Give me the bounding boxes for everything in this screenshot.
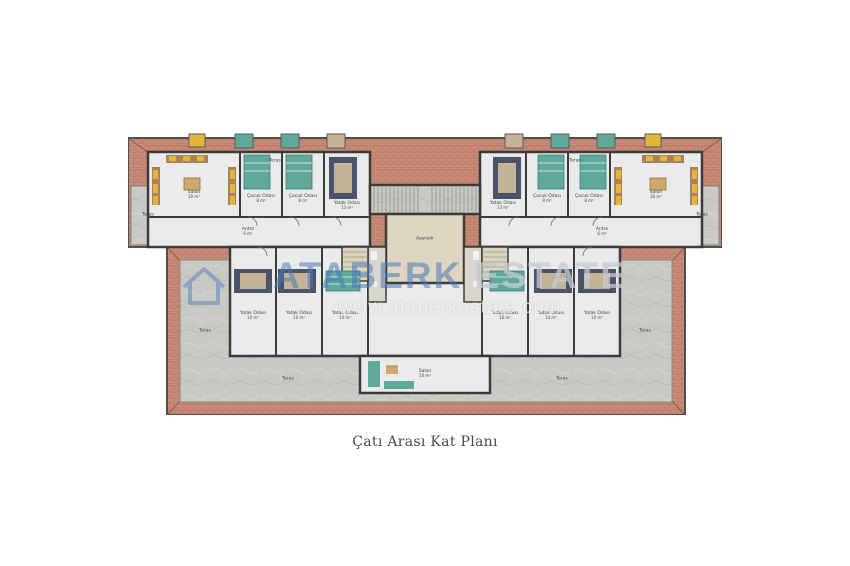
plan-caption: Çatı Arası Kat Planı (0, 434, 850, 450)
floorplan-figure: Salon30 m²Çocuk Odası8 m²Çocuk Odası8 m²… (0, 0, 850, 566)
floor-plan-drawing (128, 131, 722, 415)
floor-plan: Salon30 m²Çocuk Odası8 m²Çocuk Odası8 m²… (128, 131, 722, 415)
